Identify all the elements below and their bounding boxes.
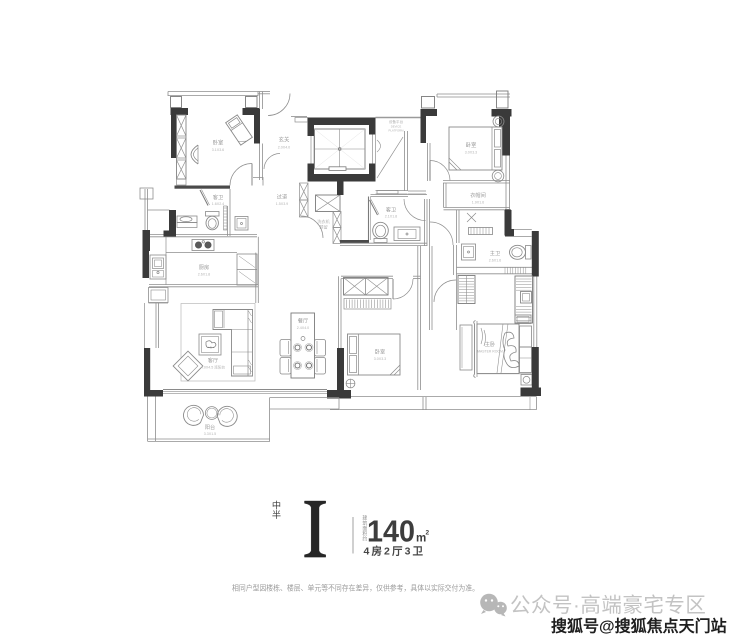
- svg-text:2.1X1.8: 2.1X1.8: [385, 215, 397, 219]
- svg-text:2.4X4.0: 2.4X4.0: [297, 326, 309, 330]
- svg-text:客厅: 客厅: [208, 356, 218, 364]
- svg-text:客卫: 客卫: [213, 193, 223, 201]
- svg-text:1.5X3.9: 1.5X3.9: [276, 202, 288, 206]
- svg-text:搜狐号@搜狐焦点天门站: 搜狐号@搜狐焦点天门站: [551, 617, 727, 636]
- svg-text:2.6X1.6: 2.6X1.6: [489, 259, 501, 263]
- svg-text:客卫: 客卫: [386, 206, 396, 214]
- svg-text:厨房: 厨房: [199, 263, 209, 271]
- svg-text:中: 中: [272, 500, 281, 511]
- svg-text:3.0X3.3: 3.0X3.3: [374, 357, 386, 361]
- svg-text:4房2厅3卫: 4房2厅3卫: [364, 545, 424, 558]
- svg-text:过道: 过道: [277, 193, 287, 201]
- svg-text:1.6X2.4: 1.6X2.4: [212, 202, 224, 206]
- svg-text:3.3X1.5: 3.3X1.5: [204, 432, 216, 436]
- svg-text:2: 2: [426, 530, 430, 537]
- svg-text:主卧: 主卧: [485, 340, 495, 348]
- svg-text:公众号·高端豪宅专区: 公众号·高端豪宅专区: [510, 594, 706, 617]
- svg-text:设备平台: 设备平台: [389, 119, 404, 124]
- svg-text:3.1X3.6: 3.1X3.6: [212, 148, 224, 152]
- svg-text:2.6X1.8: 2.6X1.8: [198, 273, 210, 277]
- svg-text:衣帽间: 衣帽间: [470, 191, 486, 199]
- svg-text:预留: 预留: [319, 224, 327, 231]
- svg-text:MASTER ROOM: MASTER ROOM: [477, 350, 503, 354]
- svg-text:阳台: 阳台: [205, 423, 215, 431]
- svg-text:PLATFORM: PLATFORM: [388, 129, 404, 133]
- svg-text:1.9X1.6: 1.9X1.6: [472, 201, 484, 205]
- svg-text:卧室: 卧室: [466, 141, 477, 149]
- svg-text:3.0X3.3: 3.0X3.3: [465, 151, 477, 155]
- svg-text:玄关: 玄关: [279, 136, 290, 144]
- svg-text:主卫: 主卫: [490, 249, 500, 257]
- svg-text:餐厅: 餐厅: [298, 317, 308, 325]
- svg-text:4.0X4.5 连阳台: 4.0X4.5 连阳台: [201, 365, 226, 370]
- svg-text:半: 半: [272, 509, 281, 520]
- svg-text:140: 140: [367, 514, 415, 549]
- svg-text:相同户型因楼栋、楼层、单元等不同存在差异，仅供参考，具体以实: 相同户型因楼栋、楼层、单元等不同存在差异，仅供参考，具体以实际交付为准。: [232, 584, 479, 593]
- svg-text:卧室: 卧室: [213, 139, 224, 147]
- svg-text:2.0X4.0: 2.0X4.0: [278, 146, 290, 150]
- svg-text:卧室: 卧室: [375, 348, 385, 356]
